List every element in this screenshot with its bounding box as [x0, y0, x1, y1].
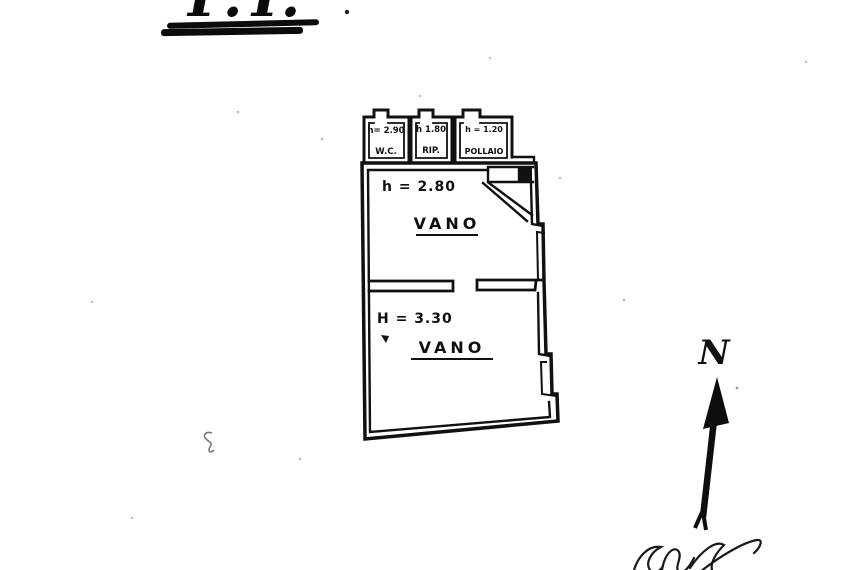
stray-squiggle	[204, 432, 214, 451]
window-lower-right-2	[541, 362, 556, 396]
floorplan-drawing: h= 2.90 W.C. h 1.80 RIP. h = 1.20 POLLAI…	[0, 0, 850, 570]
divider-wall	[369, 280, 541, 291]
wc-name-label: W.C.	[375, 147, 396, 157]
scan-artifacts	[91, 10, 807, 519]
north-arrow-fletching	[695, 512, 706, 530]
scanned-floorplan-document: P.T.	[0, 0, 850, 570]
room1-height-label: h = 2.80	[382, 179, 456, 195]
main-outer-wall	[362, 163, 558, 439]
floor-plan-labels: h= 2.90 W.C. h 1.80 RIP. h = 1.20 POLLAI…	[367, 125, 503, 357]
room2-name-label: VANO	[419, 338, 486, 357]
signature	[633, 540, 761, 570]
room2-height-label: H = 3.30	[377, 311, 453, 327]
wc-height-label: h= 2.90	[367, 126, 404, 136]
rip-name-label: RIP.	[422, 146, 440, 156]
pollaio-name-label: POLLAIO	[465, 147, 504, 156]
rip-height-label: h 1.80	[416, 125, 446, 135]
asterisk-mark	[381, 335, 389, 343]
floor-plan-outline	[362, 110, 558, 439]
room1-name-label: VANO	[414, 214, 481, 233]
corner-closet-filled	[520, 168, 532, 181]
north-indicator: N	[695, 333, 731, 530]
north-arrow-shaft	[703, 420, 714, 517]
corner-chamfer	[483, 183, 532, 221]
pollaio-height-label: h = 1.20	[465, 125, 503, 134]
north-label: N	[697, 333, 731, 373]
